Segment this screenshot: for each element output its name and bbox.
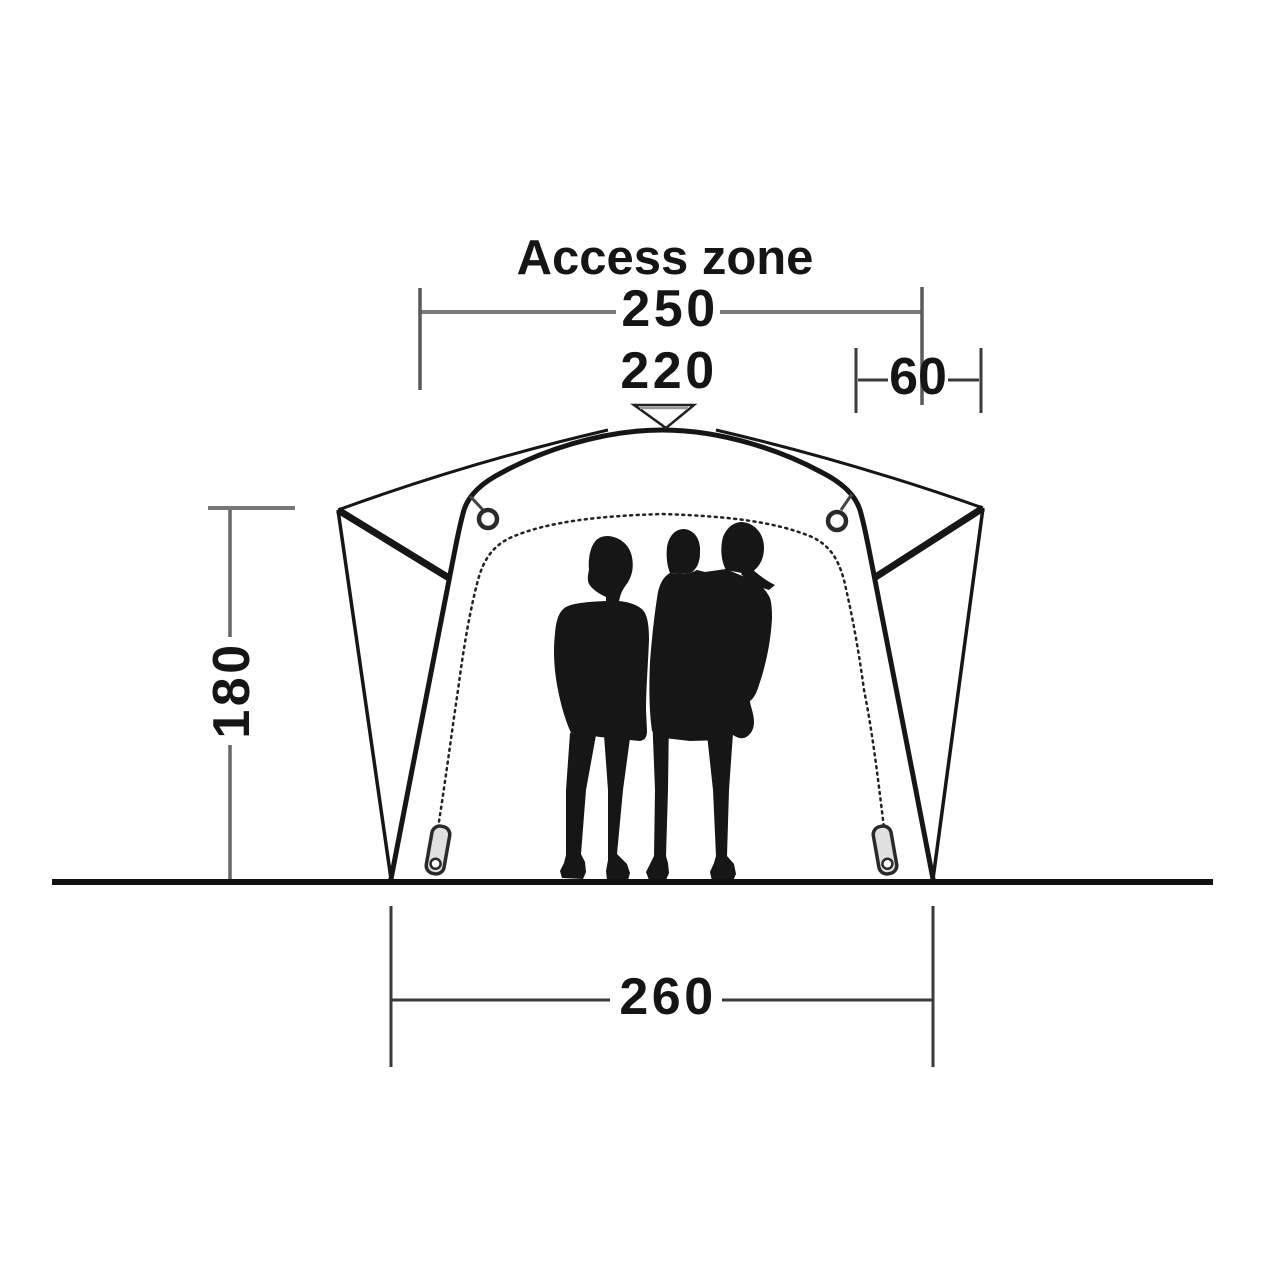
svg-text:Access zone: Access zone — [517, 231, 814, 285]
svg-text:220: 220 — [620, 342, 717, 400]
svg-text:250: 250 — [621, 280, 718, 338]
svg-text:260: 260 — [619, 968, 716, 1026]
svg-text:180: 180 — [203, 641, 261, 738]
svg-text:60: 60 — [889, 348, 947, 406]
